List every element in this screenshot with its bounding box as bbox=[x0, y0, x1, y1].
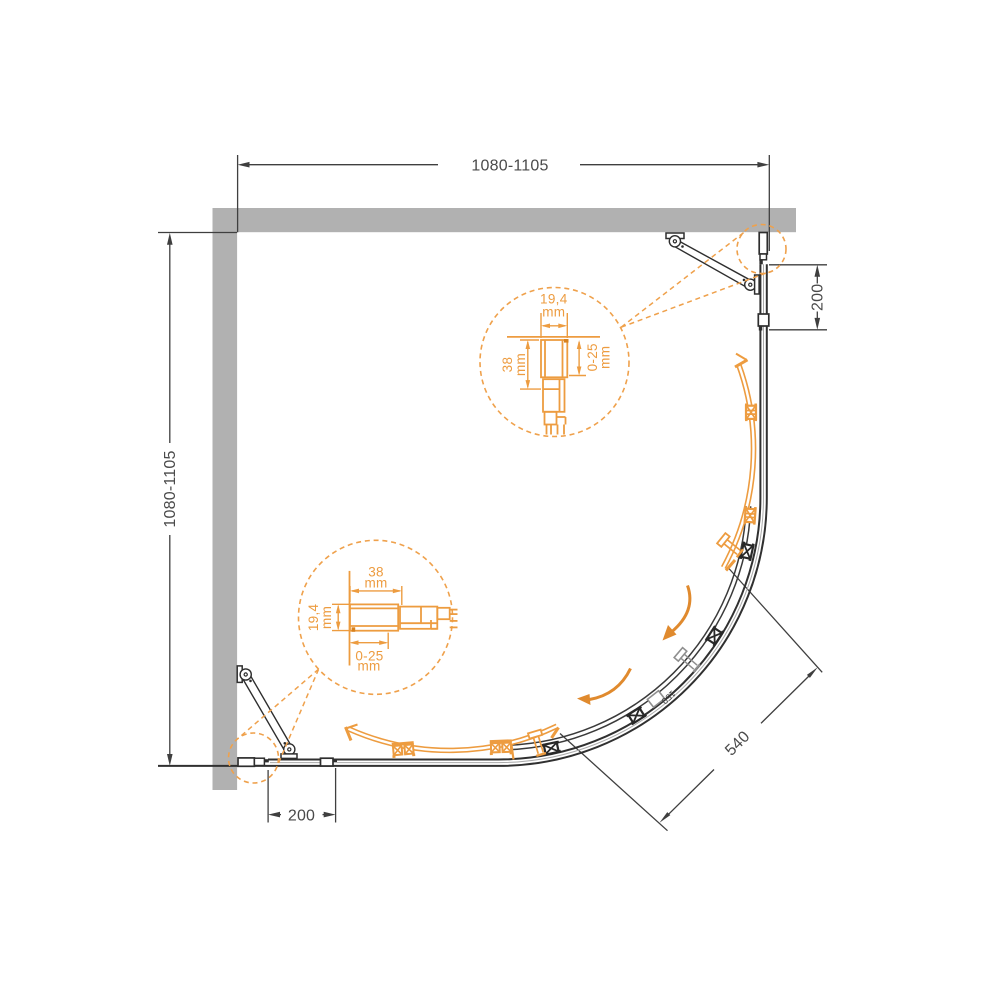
svg-text:1080-1105: 1080-1105 bbox=[471, 157, 548, 174]
svg-text:mm: mm bbox=[513, 353, 528, 376]
svg-text:1080-1105: 1080-1105 bbox=[162, 450, 179, 527]
svg-text:540: 540 bbox=[722, 728, 753, 759]
svg-text:mm: mm bbox=[364, 576, 387, 591]
svg-text:200: 200 bbox=[810, 284, 827, 311]
svg-text:mm: mm bbox=[598, 346, 613, 369]
svg-text:200: 200 bbox=[288, 807, 315, 824]
svg-text:mm: mm bbox=[357, 659, 380, 674]
svg-text:mm: mm bbox=[542, 305, 565, 320]
svg-text:mm: mm bbox=[319, 606, 334, 629]
